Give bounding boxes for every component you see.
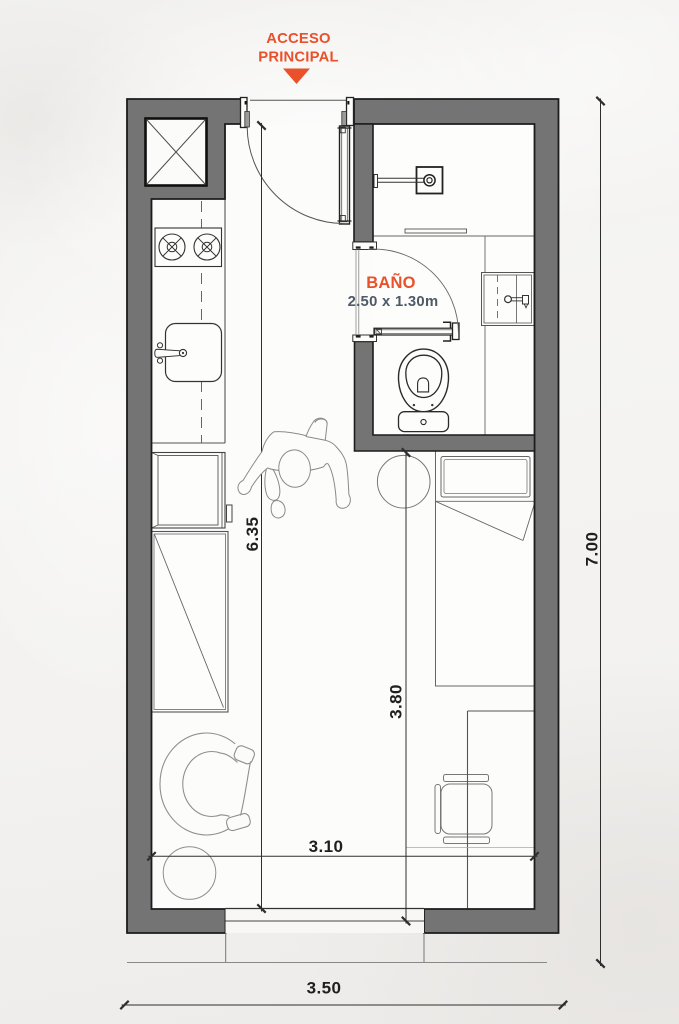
svg-text:ACCESO: ACCESO xyxy=(266,31,331,47)
svg-text:3.80: 3.80 xyxy=(387,684,406,719)
svg-text:2.50 x 1.30m: 2.50 x 1.30m xyxy=(348,294,439,310)
svg-text:3.50: 3.50 xyxy=(307,979,342,998)
svg-text:PRINCIPAL: PRINCIPAL xyxy=(258,50,338,66)
svg-text:3.10: 3.10 xyxy=(309,837,344,856)
svg-text:BAÑO: BAÑO xyxy=(366,272,415,292)
svg-text:6.35: 6.35 xyxy=(243,517,262,552)
svg-text:7.00: 7.00 xyxy=(583,532,602,567)
